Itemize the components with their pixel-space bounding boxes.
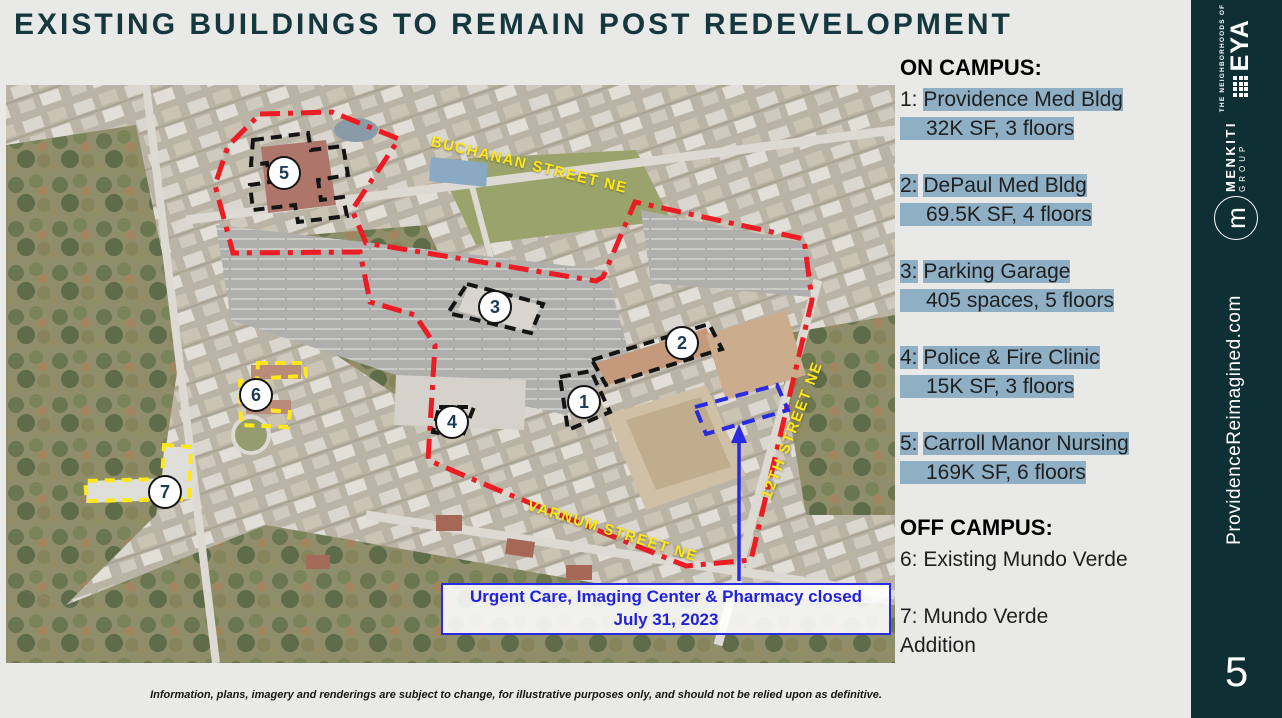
- legend-item-num: 1:: [900, 88, 918, 111]
- map-marker-5: 5: [267, 156, 301, 190]
- legend-panel: ON CAMPUS: 1: Providence Med Bldg 32K SF…: [900, 55, 1188, 688]
- legend-item-4: 4: Police & Fire Clinic 15K SF, 3 floors: [900, 343, 1188, 401]
- legend-item-name: Providence Med Bldg: [923, 88, 1123, 111]
- map-marker-7: 7: [148, 475, 182, 509]
- legend-item-detail: 15K SF, 3 floors: [900, 375, 1074, 398]
- legend-item-5: 5: Carroll Manor Nursing 169K SF, 6 floo…: [900, 429, 1188, 487]
- map-marker-4: 4: [435, 405, 469, 439]
- legend-item-detail: 32K SF, 3 floors: [900, 117, 1074, 140]
- eya-tagline: THE NEIGHBORHOODS OF: [1219, 4, 1226, 113]
- map-marker-6: 6: [239, 378, 273, 412]
- website-label: ProvidenceReimagined.com: [1224, 285, 1248, 555]
- legend-item-name: Parking Garage: [923, 260, 1070, 283]
- menkiti-logo: MENKITI GROUP: [1221, 122, 1251, 192]
- legend-item-detail: 169K SF, 6 floors: [900, 461, 1086, 484]
- eya-wordmark: EYA: [1228, 19, 1253, 71]
- menkiti-group-label: GROUP: [1238, 143, 1248, 192]
- legend-item-1: 1: Providence Med Bldg 32K SF, 3 floors: [900, 85, 1188, 143]
- legend-item-detail: 405 spaces, 5 floors: [900, 289, 1114, 312]
- disclaimer-text: Information, plans, imagery and renderin…: [6, 689, 1026, 701]
- off-campus-heading: OFF CAMPUS:: [900, 515, 1188, 541]
- menkiti-wordmark: MENKITI: [1224, 121, 1238, 192]
- menkiti-monogram-letter: m: [1223, 207, 1249, 229]
- legend-item-detail: 69.5K SF, 4 floors: [900, 203, 1092, 226]
- on-campus-heading: ON CAMPUS:: [900, 55, 1188, 81]
- page-number: 5: [1191, 648, 1282, 696]
- slide-title: EXISTING BUILDINGS TO REMAIN POST REDEVE…: [14, 8, 1174, 42]
- eya-logo: THE NEIGHBORHOODS OF EYA: [1214, 14, 1258, 102]
- legend-item-2: 2: DePaul Med Bldg 69.5K SF, 4 floors: [900, 171, 1188, 229]
- legend-item-name: DePaul Med Bldg: [923, 174, 1086, 197]
- legend-item-7: 7: Mundo Verde Addition: [900, 602, 1110, 660]
- legend-item-name: Carroll Manor Nursing: [923, 432, 1128, 455]
- eya-blocks-icon: [1233, 76, 1248, 97]
- legend-item-name: Police & Fire Clinic: [923, 346, 1099, 369]
- aerial-map: BUCHANAN STREET NE VARNUM STREET NE 12TH…: [6, 85, 895, 663]
- map-marker-2: 2: [665, 326, 699, 360]
- aerial-map-graphic: [6, 85, 895, 663]
- legend-item-num: 5:: [900, 432, 918, 455]
- menkiti-monogram-icon: m: [1214, 196, 1258, 240]
- map-marker-3: 3: [478, 290, 512, 324]
- legend-item-3: 3: Parking Garage 405 spaces, 5 floors: [900, 257, 1188, 315]
- closure-callout: Urgent Care, Imaging Center & Pharmacy c…: [441, 583, 891, 635]
- legend-item-num: 4:: [900, 346, 918, 369]
- legend-item-num: 2:: [900, 174, 918, 197]
- legend-item-6: 6: Existing Mundo Verde: [900, 545, 1188, 574]
- legend-item-num: 3:: [900, 260, 918, 283]
- haze-overlay: [6, 85, 895, 663]
- map-marker-1: 1: [567, 385, 601, 419]
